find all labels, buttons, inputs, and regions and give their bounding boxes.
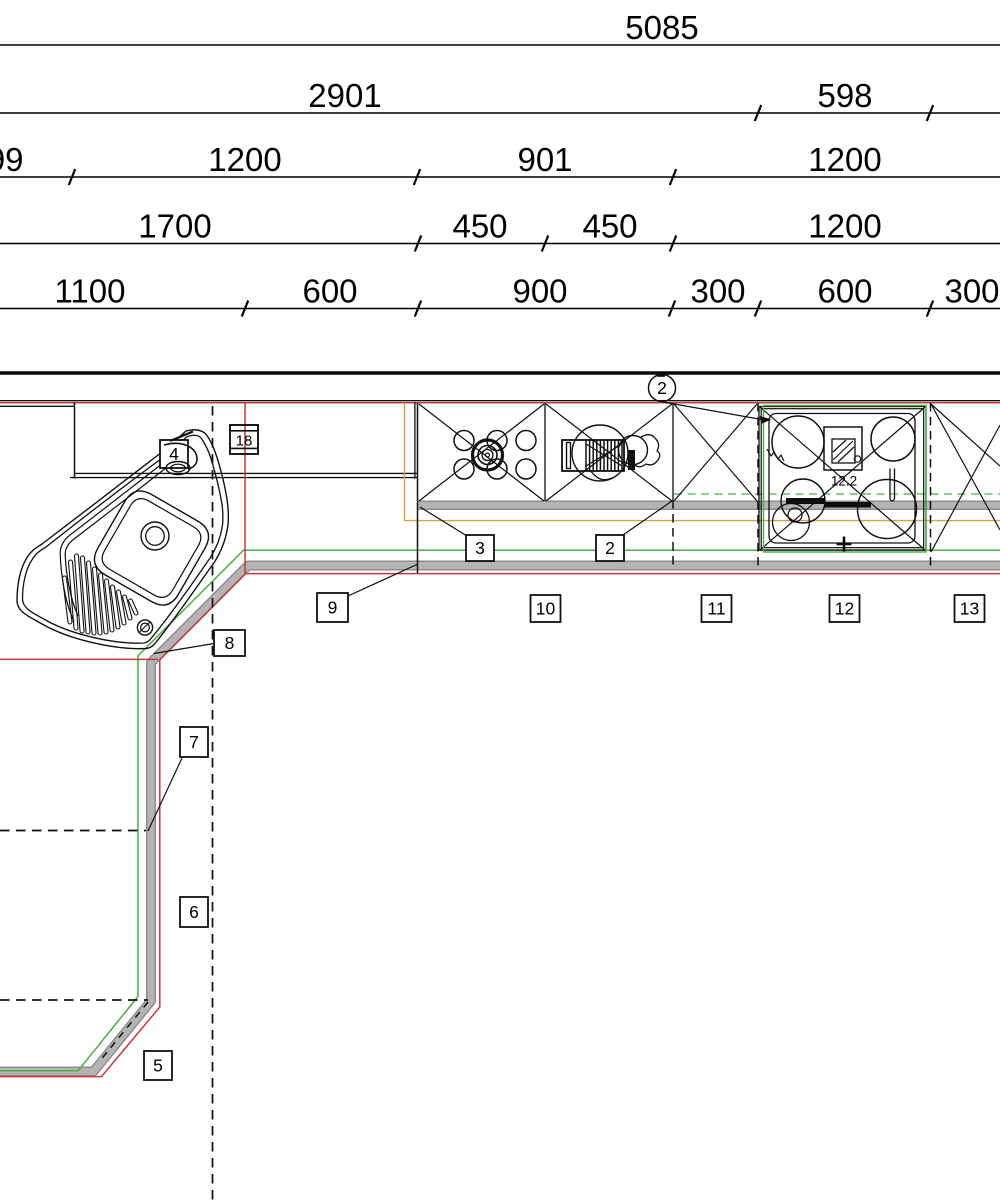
svg-text:1100: 1100 (55, 273, 126, 310)
svg-text:5: 5 (153, 1056, 163, 1076)
svg-text:2: 2 (657, 378, 667, 398)
svg-text:8: 8 (225, 633, 235, 653)
svg-text:2: 2 (605, 538, 615, 558)
svg-text:6: 6 (189, 902, 199, 922)
svg-text:13: 13 (960, 599, 979, 619)
svg-text:450: 450 (452, 208, 507, 245)
svg-text:1700: 1700 (138, 208, 211, 245)
svg-text:11: 11 (707, 599, 725, 619)
svg-text:12: 12 (835, 599, 854, 619)
svg-text:18: 18 (236, 433, 253, 450)
svg-text:600: 600 (817, 273, 872, 310)
svg-text:5085: 5085 (625, 9, 698, 46)
svg-text:9: 9 (328, 598, 338, 618)
svg-text:901: 901 (517, 141, 572, 178)
svg-text:1200: 1200 (808, 208, 881, 245)
svg-text:10: 10 (536, 599, 556, 619)
svg-text:12.2: 12.2 (831, 474, 857, 489)
svg-text:900: 900 (512, 273, 567, 310)
svg-text:2901: 2901 (308, 77, 381, 114)
svg-text:499: 499 (0, 141, 24, 178)
svg-text:3: 3 (475, 538, 485, 558)
svg-text:300: 300 (944, 273, 999, 310)
svg-text:1200: 1200 (808, 141, 881, 178)
svg-text:300: 300 (690, 273, 745, 310)
svg-text:598: 598 (817, 77, 872, 114)
svg-text:1200: 1200 (208, 141, 281, 178)
svg-text:7: 7 (189, 732, 199, 752)
svg-text:600: 600 (302, 273, 357, 310)
svg-text:450: 450 (582, 208, 637, 245)
